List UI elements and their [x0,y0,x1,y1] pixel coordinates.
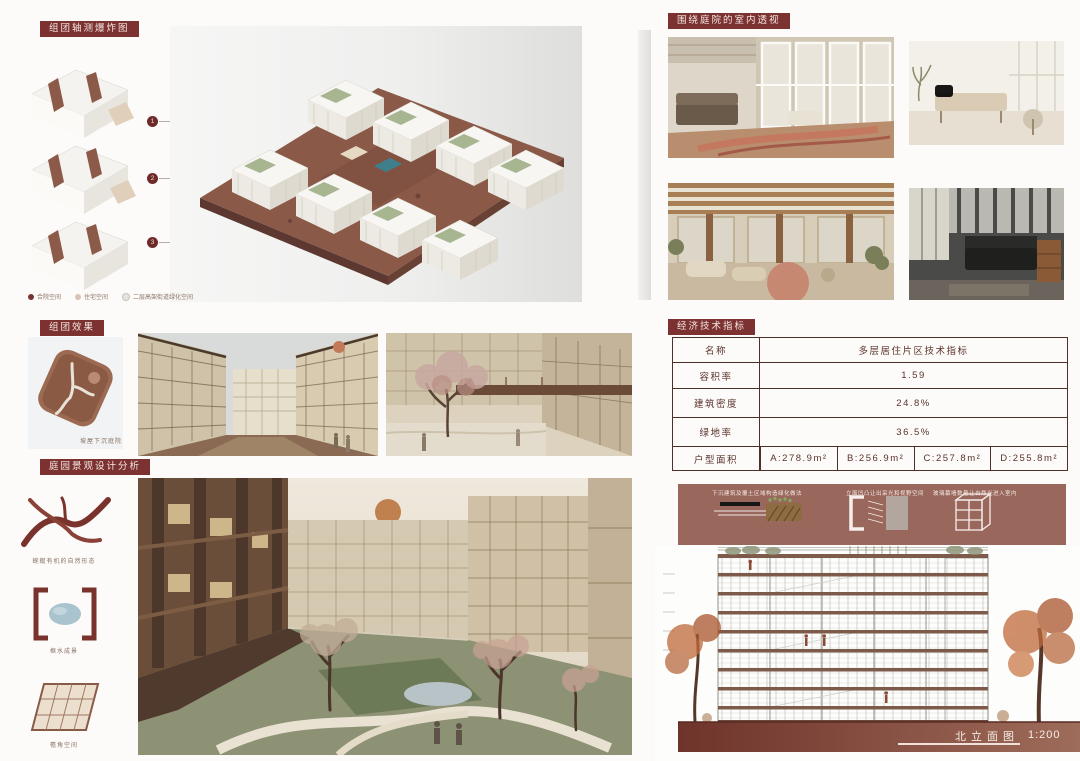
legend-item-1: 合院空间 [28,292,61,301]
legend-dot-2-icon [75,294,81,300]
interior-render-3 [668,183,894,300]
landscape-section-label: 庭园景观设计分析 [40,459,150,475]
interior-section-label: 围绕庭院的室内透视 [668,13,790,29]
axonometric-rendering [170,26,582,302]
row-name: 建筑密度 [673,389,760,417]
elevation-scale: 1:200 [1028,729,1061,741]
row-value: 1.59 [760,363,1067,388]
row-name: 绿地率 [673,418,760,446]
row-name: 容积率 [673,363,760,388]
page-gutter [638,30,651,300]
interior-render-1 [668,37,894,158]
organic-branches-icon [20,490,112,552]
axon-section-label: 组团轴测爆炸图 [40,21,139,37]
table-row: 容积率 1.59 [673,362,1067,388]
courtyard-render-2 [386,333,632,456]
detail-band-diagrams [678,484,1066,545]
row-value: 36.5% [760,418,1067,446]
indicator-section-label: 经济技术指标 [668,319,755,335]
table-row: 建筑密度 24.8% [673,388,1067,417]
legend-item-3: 二层高架街道绿化空间 [122,292,193,301]
area-c: C:257.8m² [914,447,991,470]
area-a: A:278.9m² [760,447,837,470]
indicator-table: 名称 多层居住片区技术指标 容积率 1.59 建筑密度 24.8% 绿地率 36… [672,337,1068,471]
site-plan-thumbnail [28,337,123,449]
group-section-label: 组团效果 [40,320,104,336]
interior-render-2 [909,41,1064,145]
marker-2: 2 [147,173,158,184]
courtyard-render-1 [138,333,378,456]
row-value: 24.8% [760,389,1067,417]
presentation-board: 组团轴测爆炸图 1 2 3 [0,0,1080,761]
axon-legend: 合院空间 住宅空间 二层高架街道绿化空间 [28,292,193,301]
legend-dot-1-icon [28,294,34,300]
legend-item-2: 住宅空间 [75,292,108,301]
landscape-caption-3: 檐角空间 [8,740,120,749]
landscape-caption-1: 蜿蜒有机的自然形态 [8,556,120,565]
row-name: 名称 [673,338,760,362]
framed-water-icon [32,586,98,642]
table-row-areas: 户型面积 A:278.9m² B:256.9m² C:257.8m² D:255… [673,446,1067,470]
legend-label-3: 二层高架街道绿化空间 [133,292,193,301]
massing-step-diagrams [22,64,144,292]
area-b: B:256.9m² [837,447,914,470]
landscape-caption-2: 框水成景 [8,646,120,655]
site-plan-caption: 坡屋下沉庭院 [30,436,122,445]
table-row: 名称 多层居住片区技术指标 [673,338,1067,362]
interior-render-4 [909,188,1064,300]
legend-dot-3-icon [122,293,130,301]
row-value: 多层居住片区技术指标 [760,338,1067,362]
marker-1: 1 [147,116,158,127]
legend-label-1: 合院空间 [37,292,61,301]
row-name: 户型面积 [673,447,760,470]
elevation-title: 北立面图 [955,728,1019,744]
elevation-title-underline [898,743,1020,745]
marker-3: 3 [147,237,158,248]
area-d: D:255.8m² [990,447,1067,470]
table-row: 绿地率 36.5% [673,417,1067,446]
main-perspective-render [138,478,632,755]
legend-label-2: 住宅空间 [84,292,108,301]
eave-skylight-icon [28,678,102,736]
